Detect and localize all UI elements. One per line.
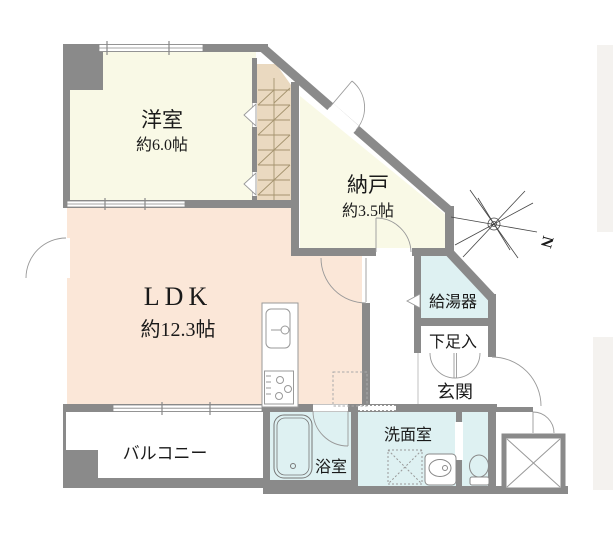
wall-balcony-left [63, 412, 66, 452]
label-balcony: バルコニー [123, 444, 208, 463]
label-ldk: LDK [144, 282, 212, 311]
door-arc-ldk-left [26, 238, 66, 278]
door-arc-kasokuire-right [455, 353, 480, 378]
compass-north-label: N [537, 234, 557, 250]
label-nando-size: 約3.5帖 [342, 202, 394, 220]
wash-basin-icon [425, 454, 456, 485]
label-yokushitsu: 浴室 [315, 458, 347, 476]
label-nando: 納戸 [347, 173, 389, 197]
label-kasokuire: 下足入 [429, 334, 477, 351]
wall-bath-left [263, 410, 270, 487]
floor-plan-page: N 洋室 約6.0帖 納戸 約3.5帖 LDK 約12.3帖 給湯器 下足入 玄… [0, 0, 613, 540]
label-senmenshitsu: 洗面室 [384, 426, 432, 444]
floor-plan: N 洋室 約6.0帖 納戸 約3.5帖 LDK 約12.3帖 給湯器 下足入 玄… [0, 0, 613, 540]
wall-porch [496, 407, 533, 412]
room-fills [66, 47, 494, 488]
wall-bottom-bath [263, 480, 358, 494]
door-arc-entrance [492, 357, 541, 406]
kitchen-counter [262, 303, 298, 407]
wall-bath-right [351, 410, 358, 487]
compass-icon [451, 190, 537, 258]
wall-balcony-bottom [96, 478, 268, 488]
label-genkan: 玄関 [437, 382, 473, 402]
door-marker-kyutouki [407, 294, 420, 308]
opening-toilet [455, 422, 463, 460]
label-ldk-size: 約12.3帖 [141, 318, 216, 341]
label-youshitsu: 洋室 [141, 108, 183, 132]
wall-nando-bottom [291, 248, 454, 256]
wall-closet-right [291, 82, 299, 255]
pillar-balcony [63, 450, 98, 488]
label-youshitsu-size: 約6.0帖 [136, 136, 188, 154]
outside-band-top [597, 45, 613, 232]
opening-ldk-left [63, 238, 70, 278]
door-arc-porch [533, 412, 554, 433]
elevator-shaft [504, 436, 563, 490]
label-kyutouki: 給湯器 [429, 293, 477, 311]
opening-entrance [488, 357, 496, 404]
wall-toilet-right [488, 412, 496, 487]
wall-kyutouki-bottom [414, 318, 489, 326]
door-arc-kasokuire-left [430, 353, 455, 378]
wall-left-upper [63, 44, 70, 207]
opening-nando-bottom [376, 248, 412, 256]
outside-band-bottom [593, 337, 613, 490]
